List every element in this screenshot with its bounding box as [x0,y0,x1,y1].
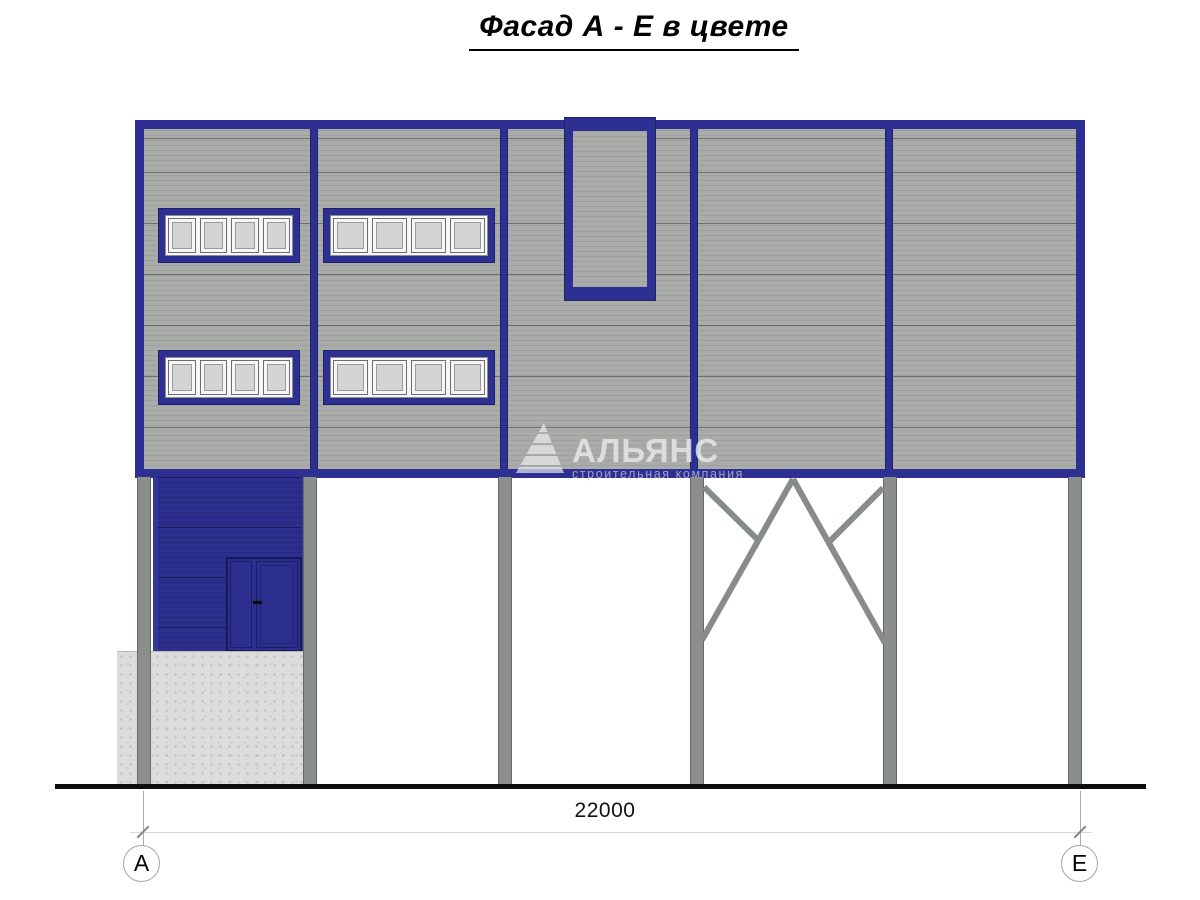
window-band-lower-left [158,350,300,405]
window-frame [165,215,293,256]
support-column-1 [137,477,151,787]
page-title: Фасад А - Е в цвете [434,10,834,51]
window-frame [330,357,488,398]
page-title-text: Фасад А - Е в цвете [469,10,798,51]
dimension-line [130,832,1092,833]
grid-bubble-right: Е [1061,845,1098,882]
door-leaf-narrow [230,561,252,648]
drawing-sheet: Фасад А - Е в цвете [0,0,1200,900]
building-facade [135,120,1085,478]
facade-mullion-3 [690,129,698,469]
support-column-6 [1068,477,1082,787]
support-column-2 [303,477,317,787]
facade-mullion-1 [310,129,318,469]
window-frame [330,215,488,256]
facade-mullion-2 [500,129,508,469]
support-column-3 [498,477,512,787]
grid-axis-right-label: Е [1072,850,1087,877]
facade-mullion-4 [885,129,893,469]
window-band-upper-left [158,208,300,263]
window-frame [165,357,293,398]
dimension-label: 22000 [505,799,705,823]
door-leaf-wide [256,561,298,648]
grid-axis-left-label: А [134,850,149,877]
window-band-upper-second [323,208,495,263]
dimension-extension-right [1080,791,1081,846]
entrance-door [226,557,302,652]
dimension-extension-left [143,791,144,846]
cross-bracing [690,475,898,647]
ground-line [55,784,1146,789]
door-handle [253,601,262,604]
chimney-recess [565,118,655,300]
window-band-lower-second [323,350,495,405]
grid-bubble-left: А [123,845,160,882]
